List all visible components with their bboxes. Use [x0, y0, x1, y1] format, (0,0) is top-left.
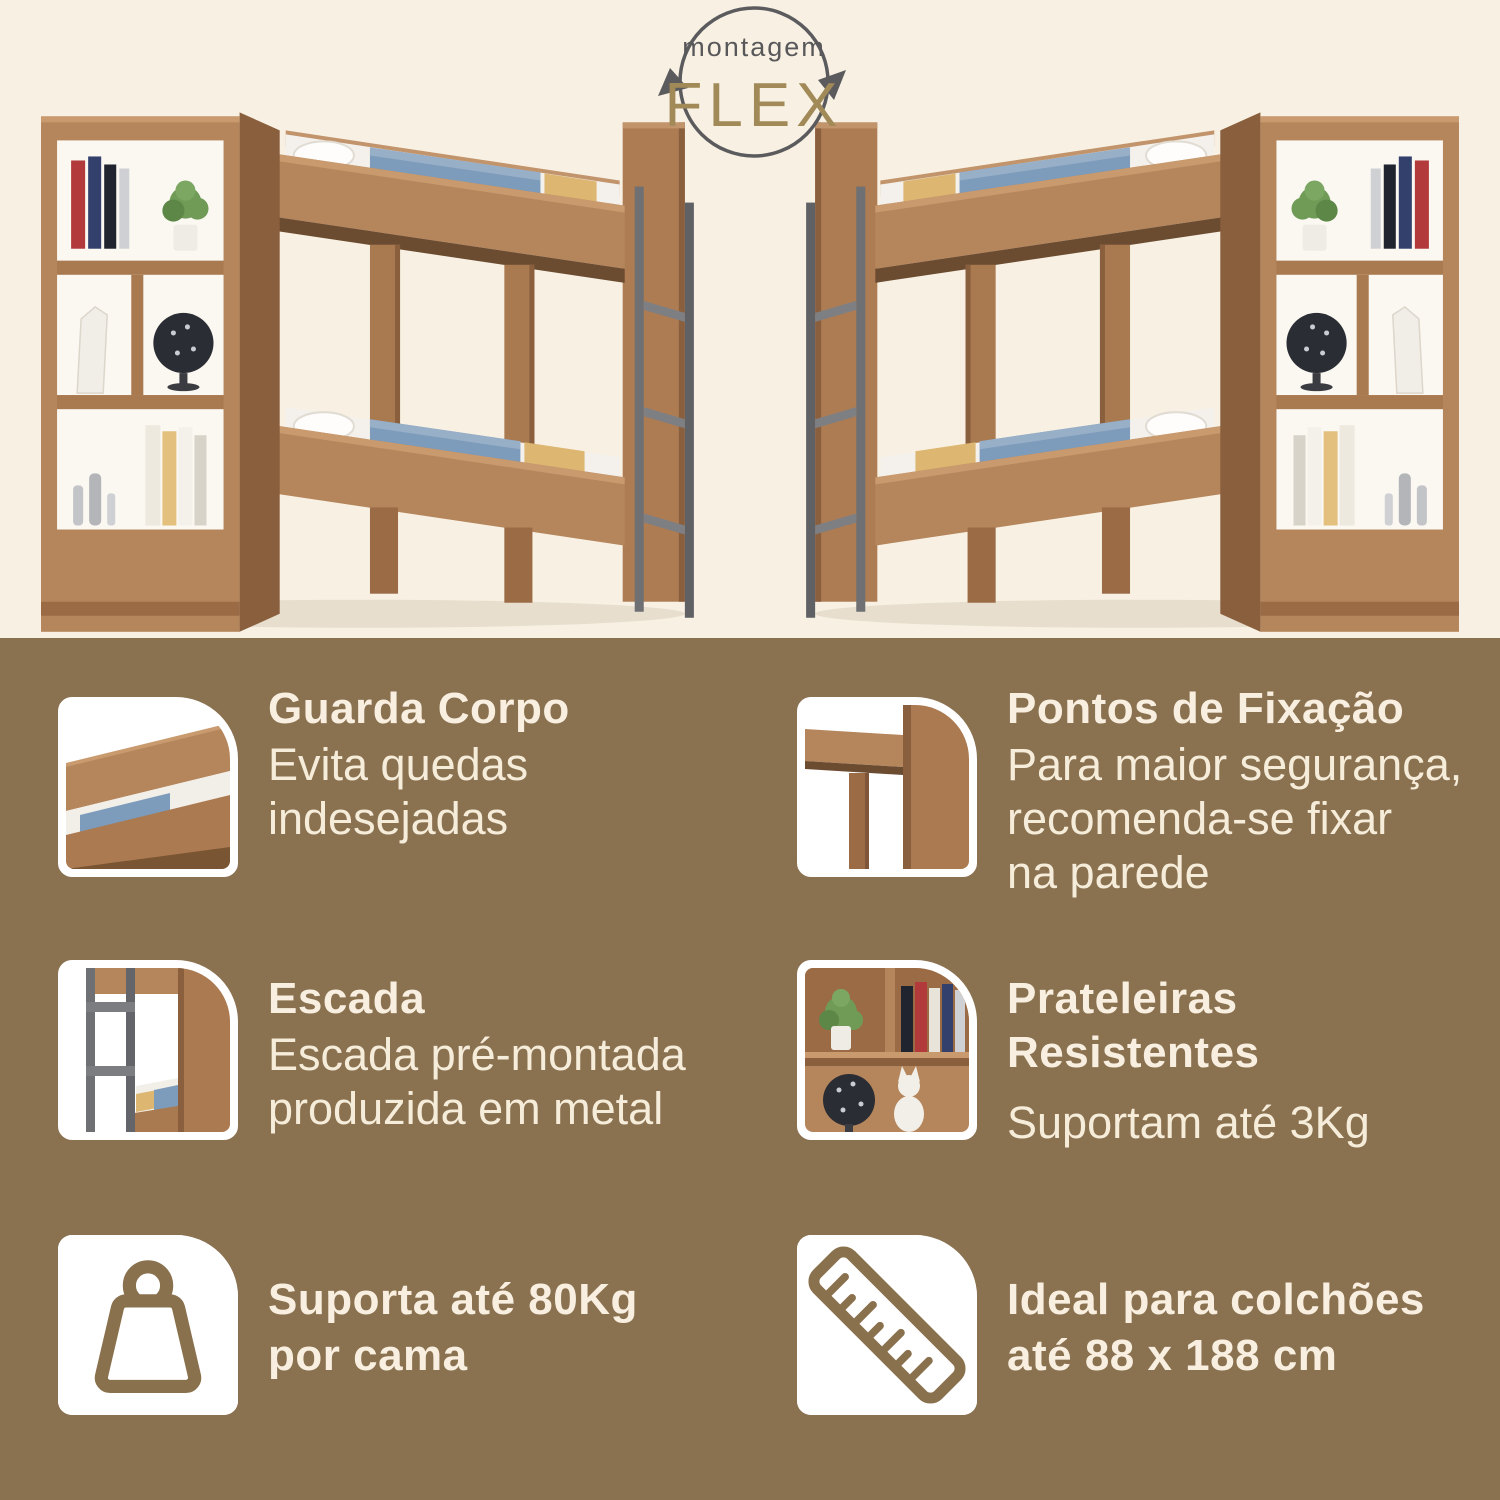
shelves-thumbnail: [797, 960, 977, 1140]
badge-capacity-text-block: Suporta até 80Kg por cama: [268, 1272, 638, 1384]
feature-body: Para maior segurança, recomenda-se fixar…: [1007, 738, 1462, 900]
guard-rail-photo: [66, 705, 230, 869]
feature-body: Evita quedas indesejadas: [268, 738, 570, 846]
fixation-thumbnail: [797, 697, 977, 877]
logo-main-text: FLEX: [664, 71, 843, 140]
feature-title: Guarda Corpo: [268, 682, 570, 736]
ladder-thumbnail: [58, 960, 238, 1140]
feature-body: Suportam até 3Kg: [1007, 1096, 1370, 1150]
guard-rail-thumbnail: [58, 697, 238, 877]
feature-guarda-corpo: Guarda Corpo Evita quedas indesejadas: [268, 682, 570, 846]
weight-icon: [58, 1235, 238, 1415]
feature-title: Prateleiras Resistentes: [1007, 972, 1370, 1080]
feature-title: Escada: [268, 972, 686, 1026]
badge-text: Ideal para colchões até 88 x 188 cm: [1007, 1272, 1425, 1384]
ruler-icon: [797, 1235, 977, 1415]
feature-escada: Escada Escada pré-montada produzida em m…: [268, 972, 686, 1136]
bunk-bed-right-image: [765, 56, 1467, 638]
badge-text: Suporta até 80Kg por cama: [268, 1272, 638, 1384]
frame-corner-photo: [805, 705, 969, 869]
feature-body: Escada pré-montada produzida em metal: [268, 1028, 686, 1136]
capacity-badge: [58, 1235, 238, 1415]
montagem-flex-logo: montagem FLEX: [642, 2, 862, 174]
logo-top-text: montagem: [682, 32, 826, 62]
shelves-photo: [805, 968, 969, 1132]
metal-ladder-photo: [66, 968, 230, 1132]
feature-prateleiras: Prateleiras Resistentes Suportam até 3Kg: [1007, 972, 1370, 1150]
mattress-size-badge: [797, 1235, 977, 1415]
product-hero: montagem FLEX: [0, 0, 1500, 638]
infographic-canvas: montagem FLEX Guarda Corpo Evita quedas …: [0, 0, 1500, 1500]
features-panel: Guarda Corpo Evita quedas indesejadas Po…: [0, 638, 1500, 1500]
badge-mattress-text-block: Ideal para colchões até 88 x 188 cm: [1007, 1272, 1425, 1384]
feature-title: Pontos de Fixação: [1007, 682, 1462, 736]
feature-pontos-fixacao: Pontos de Fixação Para maior segurança, …: [1007, 682, 1462, 900]
bunk-bed-left-image: [33, 56, 735, 638]
